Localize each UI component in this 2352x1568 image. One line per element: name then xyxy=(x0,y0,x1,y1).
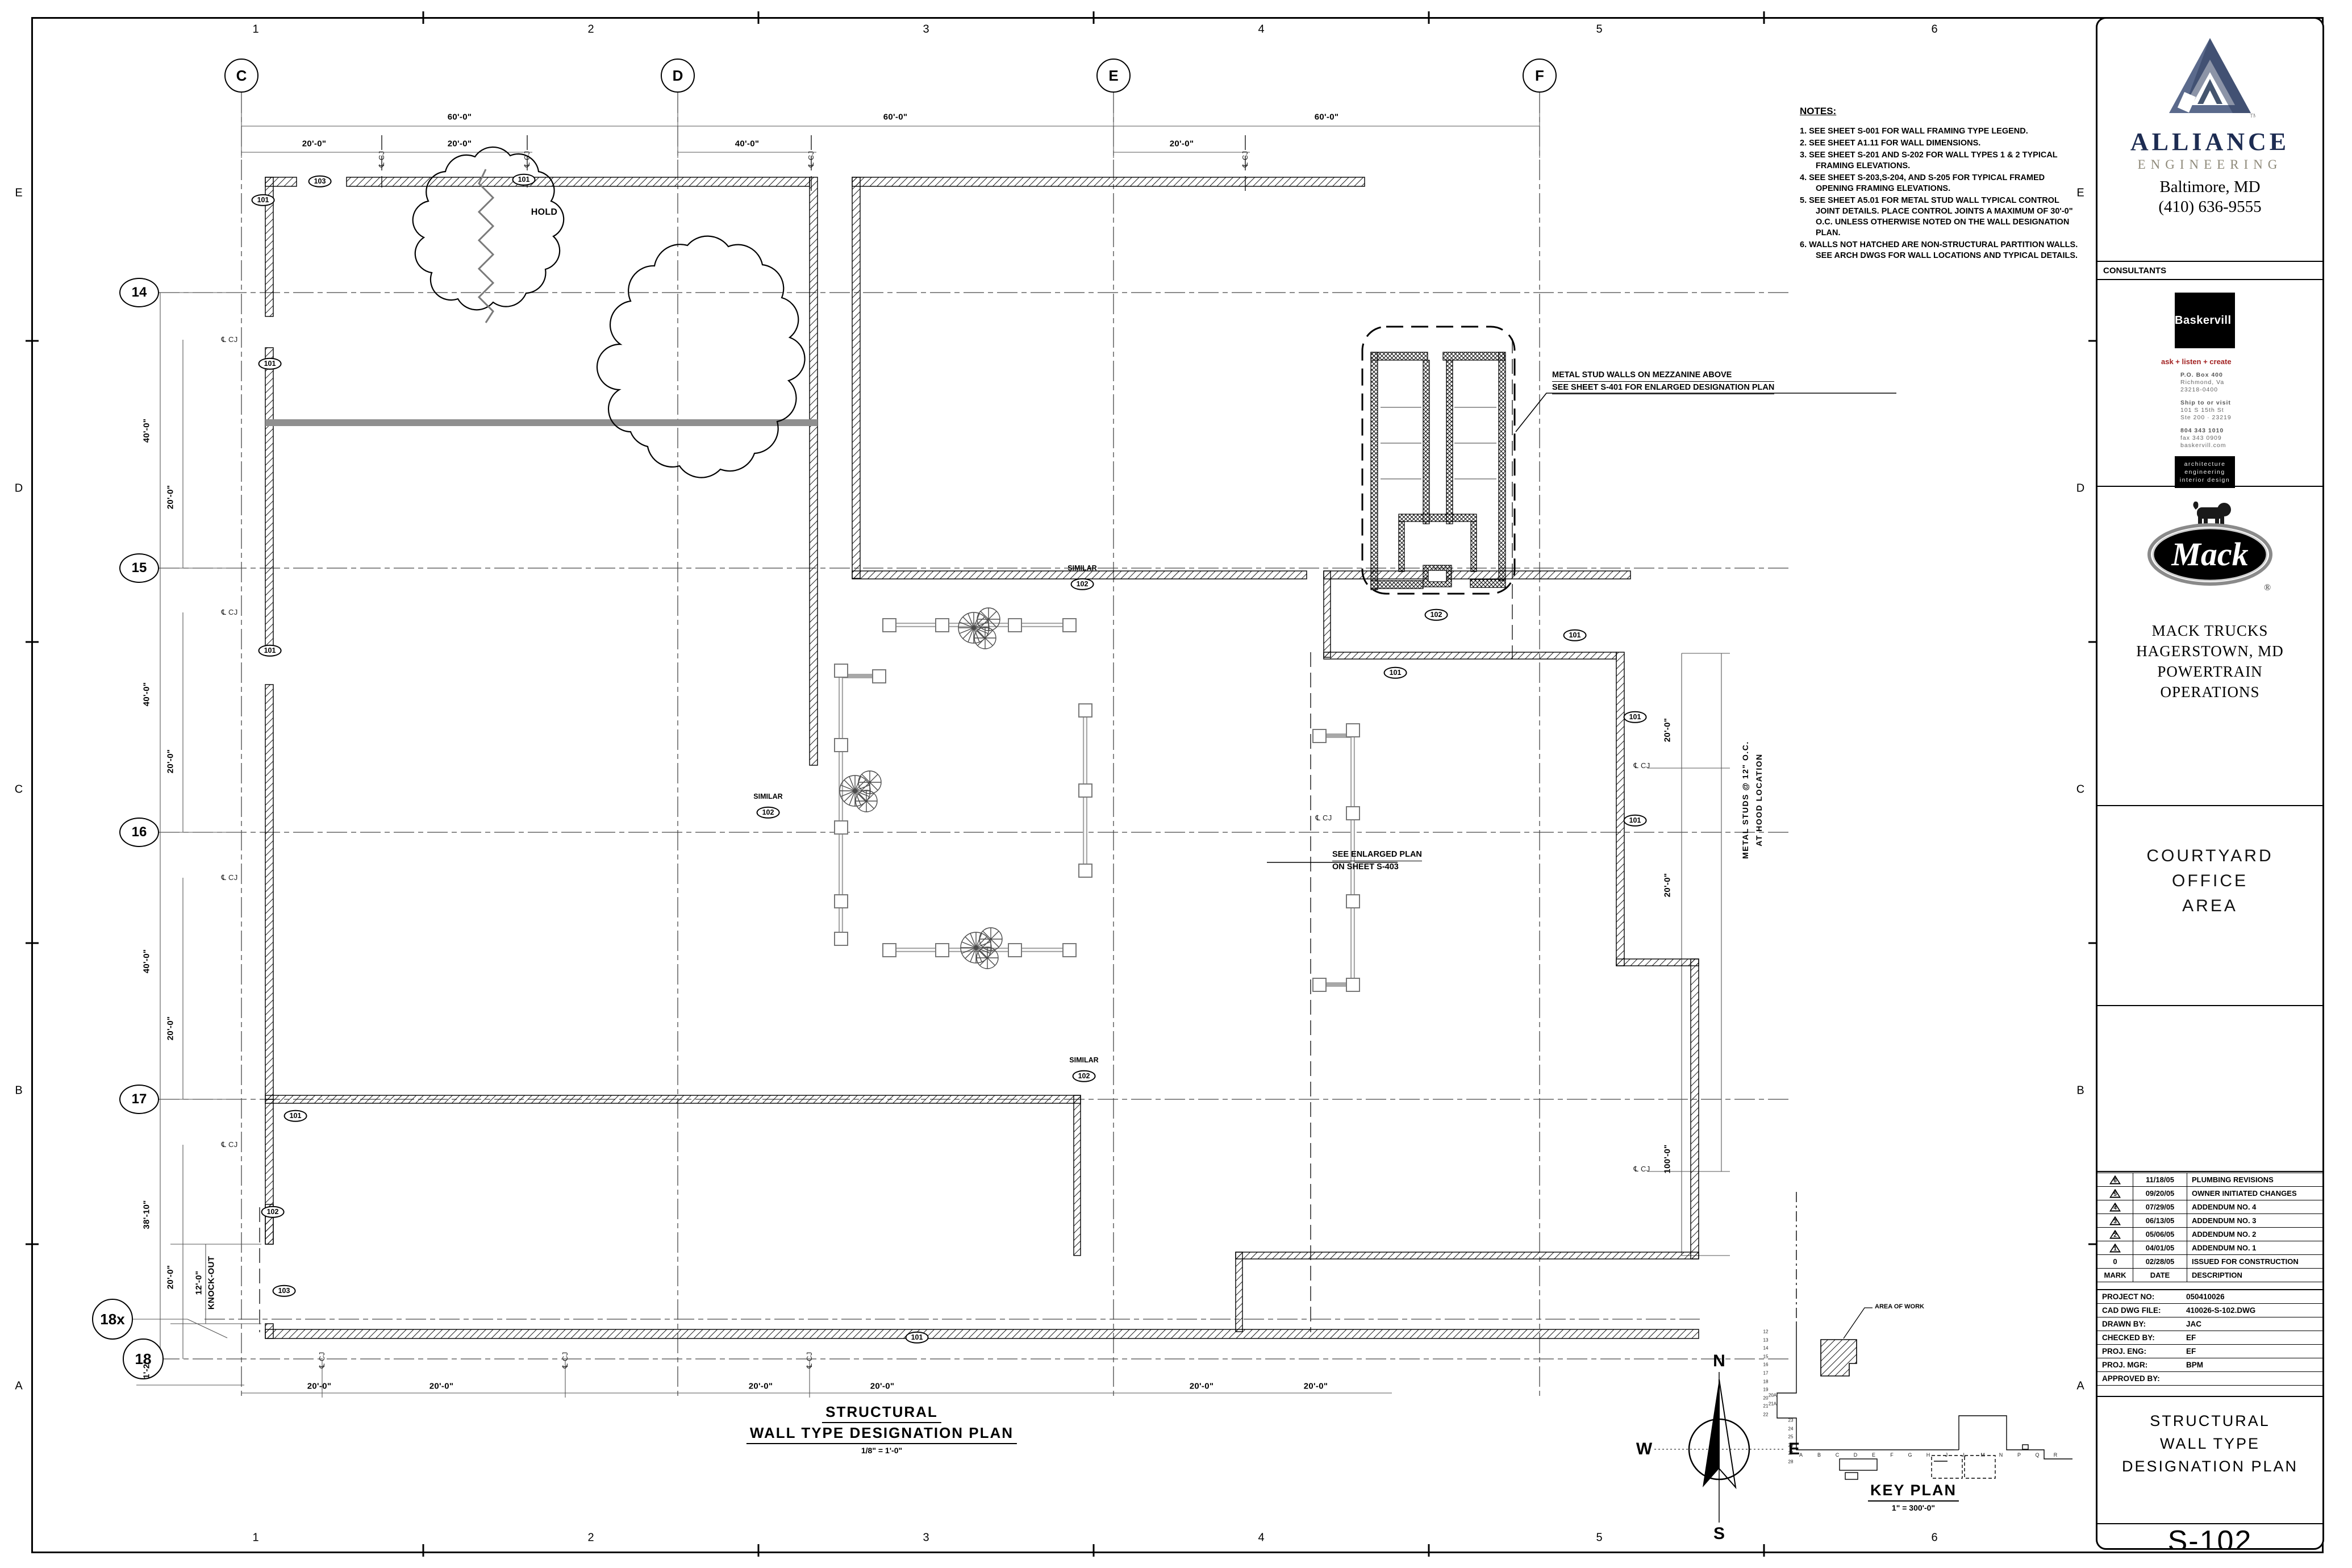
compass-north-label: N xyxy=(1713,1352,1725,1371)
dimension-label: 20'-0" xyxy=(307,1382,332,1391)
border-letter-right: C xyxy=(2076,783,2084,796)
control-joint-label: ℄ CJ xyxy=(1315,814,1332,823)
wall-type-tag: 102 xyxy=(1425,609,1448,621)
note-item: 5. SEE SHEET A5.01 FOR METAL STUD WALL T… xyxy=(1800,195,2084,239)
grid-bubble-row: 15 xyxy=(119,553,159,583)
grid-bubble-column: E xyxy=(1096,59,1131,93)
dimension-label: 40'-0" xyxy=(142,949,152,974)
revision-table: 611/18/05PLUMBING REVISIONS509/20/05OWNE… xyxy=(2097,1172,2322,1290)
border-number-top: 5 xyxy=(1596,23,1602,36)
grid-bubble-row: 14 xyxy=(119,278,159,307)
key-plan-column-letter: H xyxy=(1926,1452,1930,1458)
consultants-label: CONSULTANTS xyxy=(2097,266,2166,276)
grid-bubble-row: 18x xyxy=(92,1299,133,1340)
project-info-table: PROJECT NO:050410026CAD DWG FILE:410026-… xyxy=(2097,1290,2322,1397)
grid-bubble-column: F xyxy=(1523,59,1557,93)
dimension-label: 12'-0" xyxy=(194,1271,204,1295)
revision-row: 407/29/05ADDENDUM NO. 4 xyxy=(2097,1200,2322,1213)
border-letter-left: A xyxy=(15,1380,22,1393)
wall-type-tag: 102 xyxy=(261,1206,285,1218)
compass-east-label: E xyxy=(1788,1440,1800,1459)
svg-text:®: ® xyxy=(2264,583,2271,593)
control-joint-label: ℄ CJ xyxy=(807,151,816,167)
dimension-label: 20'-0" xyxy=(302,139,327,149)
border-number-top: 3 xyxy=(923,23,929,36)
key-plan-column-letter: L xyxy=(1963,1452,1966,1458)
mezzanine-note: METAL STUD WALLS ON MEZZANINE ABOVE SEE … xyxy=(1552,369,1774,394)
similar-label: SIMILAR xyxy=(1067,564,1096,572)
key-plan-title: KEY PLAN 1" = 300'-0" xyxy=(1868,1482,1959,1512)
mack-logo-icon: Mack ® xyxy=(2145,495,2275,603)
dimension-label: 20'-0" xyxy=(166,749,176,774)
key-plan-column-letter: E xyxy=(1872,1452,1875,1458)
enlarged-plan-note-line1: SEE ENLARGED PLAN xyxy=(1332,849,1422,861)
dimension-label: 100'-0" xyxy=(1663,1144,1673,1173)
sheet-title-line: DESIGNATION PLAN xyxy=(2097,1455,2322,1478)
baskervill-services: architectureengineeringinterior design xyxy=(2175,456,2235,488)
dimension-label: 20'-0" xyxy=(1190,1382,1214,1391)
wall-type-tag: 101 xyxy=(258,645,282,657)
firm-subtitle: ENGINEERING xyxy=(2097,157,2322,172)
dimension-label: 38'-10" xyxy=(142,1200,152,1229)
key-plan-row-number: 28 xyxy=(1788,1459,1794,1465)
key-plan-column-letter: M xyxy=(1980,1452,1985,1458)
contact-line: fax 343 0909 xyxy=(2180,435,2322,442)
dimension-label: 1'-2" xyxy=(142,1360,152,1379)
dimension-label: 20'-0" xyxy=(870,1382,895,1391)
dimension-label: 40'-0" xyxy=(142,419,152,443)
client-panel: Mack ® MACK TRUCKSHAGERSTOWN, MDPOWERTRA… xyxy=(2097,487,2322,806)
mezzanine-note-line1: METAL STUD WALLS ON MEZZANINE ABOVE xyxy=(1552,369,1774,382)
wall-type-tag: 103 xyxy=(273,1285,296,1297)
firm-city: Baltimore, MD xyxy=(2097,178,2322,197)
dimension-label: 20'-0" xyxy=(429,1382,454,1391)
similar-label: SIMILAR xyxy=(753,793,782,800)
revision-row: 509/20/05OWNER INITIATED CHANGES xyxy=(2097,1186,2322,1200)
revision-delta-icon: 6 xyxy=(2109,1175,2121,1185)
client-name-line: HAGERSTOWN, MD xyxy=(2097,641,2322,661)
border-letter-left: E xyxy=(15,187,22,200)
control-joint-label: ℄ CJ xyxy=(1241,151,1250,167)
similar-label: SIMILAR xyxy=(1069,1056,1098,1064)
revision-row: 002/28/05ISSUED FOR CONSTRUCTION xyxy=(2097,1254,2322,1268)
consultant-card: Baskervill ask + listen + create P.O. Bo… xyxy=(2097,280,2322,487)
hold-label: HOLD xyxy=(531,207,558,218)
key-plan-row-number: 23 xyxy=(1788,1418,1794,1423)
project-info-row: CHECKED BY:EF xyxy=(2097,1331,2322,1345)
revision-row: 205/06/05ADDENDUM NO. 2 xyxy=(2097,1227,2322,1241)
client-name-line: POWERTRAIN xyxy=(2097,661,2322,682)
border-letter-right: D xyxy=(2076,482,2084,495)
dimension-label: 40'-0" xyxy=(142,682,152,707)
control-joint-label: ℄ CJ xyxy=(221,608,237,617)
service-line: architecture xyxy=(2175,460,2235,468)
border-letter-right: A xyxy=(2076,1380,2084,1393)
dimension-label: 20'-0" xyxy=(1663,718,1673,743)
revision-delta-icon: 2 xyxy=(2109,1230,2121,1239)
svg-text:Mack: Mack xyxy=(2171,536,2248,573)
key-plan-row-number: 16 xyxy=(1763,1362,1769,1367)
control-joint-label: ℄ CJ xyxy=(1633,761,1650,770)
address-line: P.O. Box 400 xyxy=(2180,372,2322,379)
key-plan-column-letter: Q xyxy=(2035,1452,2039,1458)
area-of-work-label: AREA OF WORK xyxy=(1875,1303,1924,1310)
revision-delta-icon: 1 xyxy=(2109,1244,2121,1253)
consultants-bar: CONSULTANTS xyxy=(2097,262,2322,280)
compass-west-label: W xyxy=(1636,1440,1652,1459)
revision-delta-icon: 4 xyxy=(2109,1203,2121,1212)
note-item: 2. SEE SHEET A1.11 FOR WALL DIMENSIONS. xyxy=(1800,138,2084,149)
key-plan-row-number: 25 xyxy=(1788,1434,1794,1440)
dimension-label: 20'-0" xyxy=(1663,873,1673,898)
border-number-bottom: 6 xyxy=(1931,1532,1937,1545)
control-joint-label: ℄ CJ xyxy=(221,335,237,344)
control-joint-label: ℄ CJ xyxy=(1633,1165,1650,1174)
address-line: 23218-0400 xyxy=(2180,386,2322,394)
area-panel: COURTYARDOFFICEAREA xyxy=(2097,806,2322,1006)
firm-panel: TM ALLIANCE ENGINEERING Baltimore, MD (4… xyxy=(2097,19,2322,262)
key-plan-column-letter: B xyxy=(1817,1452,1821,1458)
sheet-title-panel: STRUCTURALWALL TYPEDESIGNATION PLAN xyxy=(2097,1397,2322,1524)
border-number-top: 2 xyxy=(587,23,594,36)
key-plan-row-number: 21 xyxy=(1763,1404,1769,1409)
key-plan-row-number: 19 xyxy=(1763,1387,1769,1392)
dimension-label: KNOCK-OUT xyxy=(207,1256,216,1310)
area-name-line: OFFICE xyxy=(2097,869,2322,894)
wall-type-tag: 101 xyxy=(252,194,275,206)
control-joint-label: ℄ CJ xyxy=(221,873,237,882)
baskervill-logo: Baskervill xyxy=(2175,293,2235,348)
border-number-top: 4 xyxy=(1258,23,1264,36)
key-plan-column-letter: C xyxy=(1836,1452,1840,1458)
revision-row: 611/18/05PLUMBING REVISIONS xyxy=(2097,1173,2322,1186)
dimension-label: 60'-0" xyxy=(1315,112,1339,122)
wall-type-tag: 101 xyxy=(512,174,536,186)
enlarged-plan-note-line2: ON SHEET S-403 xyxy=(1332,861,1422,873)
sheet-number-panel: S-102 xyxy=(2097,1524,2322,1550)
grid-bubble-row: 16 xyxy=(119,818,159,847)
wall-type-tag: 101 xyxy=(258,358,282,370)
sheet-title-line: STRUCTURAL xyxy=(2097,1409,2322,1432)
dimension-label: 20'-0" xyxy=(448,139,472,149)
firm-name: ALLIANCE xyxy=(2097,127,2322,156)
wall-type-tag: 101 xyxy=(1624,711,1647,723)
key-plan-scale: 1" = 300'-0" xyxy=(1868,1503,1959,1512)
key-plan-row-number: 21A xyxy=(1769,1402,1776,1407)
area-name-line: COURTYARD xyxy=(2097,844,2322,869)
border-letter-left: D xyxy=(15,482,23,495)
address-line: 101 S 15th St xyxy=(2180,407,2322,414)
key-plan-row-number: 13 xyxy=(1763,1337,1769,1342)
baskervill-visit-address: Ship to or visit101 S 15th StSte 200 · 2… xyxy=(2180,399,2322,422)
service-line: interior design xyxy=(2175,476,2235,484)
address-line: Richmond, Va xyxy=(2180,379,2322,386)
border-number-bottom: 5 xyxy=(1596,1532,1602,1545)
control-joint-label: ℄ CJ xyxy=(318,1352,327,1368)
revision-delta-icon: 5 xyxy=(2109,1189,2121,1198)
project-info-row: DRAWN BY:JAC xyxy=(2097,1317,2322,1331)
sheet-title-line: WALL TYPE xyxy=(2097,1432,2322,1455)
baskervill-address: P.O. Box 400Richmond, Va23218-0400 xyxy=(2180,372,2322,394)
revision-delta-icon: 3 xyxy=(2109,1216,2121,1225)
client-name-lines: MACK TRUCKSHAGERSTOWN, MDPOWERTRAINOPERA… xyxy=(2097,620,2322,702)
key-plan-column-letter: R xyxy=(2054,1452,2058,1458)
hood-note-line1: METAL STUDS @ 12" O.C. xyxy=(1741,741,1750,859)
plan-title: STRUCTURAL WALL TYPE DESIGNATION PLAN 1/… xyxy=(747,1403,1017,1455)
key-plan-row-number: 18 xyxy=(1763,1379,1769,1384)
wall-type-tag: 101 xyxy=(906,1332,929,1344)
wall-type-tag: 101 xyxy=(1384,667,1407,679)
notes-title: NOTES: xyxy=(1800,106,2084,117)
wall-type-tag: 101 xyxy=(284,1110,307,1122)
empty-panel xyxy=(2097,1006,2322,1172)
mezzanine-note-line2: SEE SHEET S-401 FOR ENLARGED DESIGNATION… xyxy=(1552,382,1774,394)
firm-phone: (410) 636-9555 xyxy=(2097,198,2322,216)
key-plan-column-letter: J xyxy=(1945,1452,1948,1458)
wall-type-tag: 102 xyxy=(1071,578,1094,590)
wall-type-tag: 103 xyxy=(308,176,332,187)
baskervill-tagline: ask + listen + create xyxy=(2161,357,2322,366)
hood-note-line2: AT HOOD LOCATION xyxy=(1754,753,1763,846)
plan-scale: 1/8" = 1'-0" xyxy=(747,1446,1017,1455)
contact-line: 804 343 1010 xyxy=(2180,427,2322,435)
drawing-sheet: 123456123456EDCBAEDCBA NOTES: 1. SEE SHE… xyxy=(0,0,2352,1568)
key-plan-column-letter: N xyxy=(1999,1452,2003,1458)
revision-row: 306/13/05ADDENDUM NO. 3 xyxy=(2097,1213,2322,1227)
border-letter-left: B xyxy=(15,1085,22,1098)
revision-header-row: MARKDATEDESCRIPTION xyxy=(2097,1268,2322,1282)
dimension-label: 40'-0" xyxy=(735,139,760,149)
baskervill-contact: 804 343 1010fax 343 0909baskervill.com xyxy=(2180,427,2322,449)
key-plan-row-number: 15 xyxy=(1763,1354,1769,1359)
note-item: 1. SEE SHEET S-001 FOR WALL FRAMING TYPE… xyxy=(1800,126,2084,137)
key-plan-row-number: 20A xyxy=(1769,1393,1776,1398)
border-number-top: 1 xyxy=(252,23,258,36)
border-number-bottom: 4 xyxy=(1258,1532,1264,1545)
note-item: 6. WALLS NOT HATCHED ARE NON-STRUCTURAL … xyxy=(1800,240,2084,261)
dimension-label: 20'-0" xyxy=(166,1265,176,1290)
alliance-logo-icon: TM xyxy=(2165,35,2255,120)
dimension-label: 20'-0" xyxy=(166,485,176,510)
border-letter-left: C xyxy=(15,783,23,796)
compass-south-label: S xyxy=(1713,1524,1725,1544)
address-line: Ship to or visit xyxy=(2180,399,2322,407)
grid-bubble-column: C xyxy=(224,59,258,93)
control-joint-label: ℄ CJ xyxy=(523,151,532,167)
project-info-row: APPROVED BY: xyxy=(2097,1372,2322,1386)
sheet-number: S-102 xyxy=(2168,1524,2253,1550)
revision-row: 104/01/05ADDENDUM NO. 1 xyxy=(2097,1241,2322,1254)
control-joint-label: ℄ CJ xyxy=(221,1140,237,1149)
dimension-label: 20'-0" xyxy=(1304,1382,1328,1391)
address-line: Ste 200 · 23219 xyxy=(2180,414,2322,422)
plan-title-line1: STRUCTURAL xyxy=(822,1403,941,1423)
key-plan-row-number: 22 xyxy=(1763,1412,1769,1417)
dimension-label: 60'-0" xyxy=(448,112,472,122)
border-number-bottom: 3 xyxy=(923,1532,929,1545)
notes-list: 1. SEE SHEET S-001 FOR WALL FRAMING TYPE… xyxy=(1800,126,2084,261)
key-plan-row-number: 17 xyxy=(1763,1371,1769,1376)
client-name-line: MACK TRUCKS xyxy=(2097,620,2322,641)
enlarged-plan-note: SEE ENLARGED PLAN ON SHEET S-403 xyxy=(1332,849,1422,873)
key-plan-row-number: 20 xyxy=(1763,1395,1769,1400)
key-plan-column-letter: F xyxy=(1890,1452,1894,1458)
key-plan-column-letter: G xyxy=(1908,1452,1912,1458)
title-block: TM ALLIANCE ENGINEERING Baltimore, MD (4… xyxy=(2096,17,2324,1550)
service-line: engineering xyxy=(2175,468,2235,476)
project-info-row: PROJECT NO:050410026 xyxy=(2097,1290,2322,1304)
notes-block: NOTES: 1. SEE SHEET S-001 FOR WALL FRAMI… xyxy=(1800,106,2084,262)
wall-type-tag: 102 xyxy=(757,807,780,819)
key-plan-title-text: KEY PLAN xyxy=(1868,1482,1959,1502)
key-plan-row-number: 12 xyxy=(1763,1329,1769,1335)
note-item: 4. SEE SHEET S-203,S-204, AND S-205 FOR … xyxy=(1800,173,2084,194)
note-item: 3. SEE SHEET S-201 AND S-202 FOR WALL TY… xyxy=(1800,150,2084,172)
dimension-label: 20'-0" xyxy=(749,1382,773,1391)
dimension-label: 20'-0" xyxy=(1170,139,1194,149)
control-joint-label: ℄ CJ xyxy=(561,1352,570,1368)
key-plan-row-number: 14 xyxy=(1763,1346,1769,1351)
control-joint-label: ℄ CJ xyxy=(377,151,386,167)
wall-type-tag: 101 xyxy=(1563,629,1587,641)
contact-line: baskervill.com xyxy=(2180,442,2322,449)
project-info-row: CAD DWG FILE:410026-S-102.DWG xyxy=(2097,1304,2322,1317)
project-info-row: PROJ. MGR:BPM xyxy=(2097,1358,2322,1372)
project-info-row: PROJ. ENG:EF xyxy=(2097,1345,2322,1358)
grid-bubble-row: 17 xyxy=(119,1085,159,1114)
key-plan-row-number: 24 xyxy=(1788,1426,1794,1431)
client-name-line: OPERATIONS xyxy=(2097,682,2322,702)
grid-bubble-column: D xyxy=(661,59,695,93)
key-plan-column-letter: P xyxy=(2017,1452,2021,1458)
border-number-bottom: 1 xyxy=(252,1532,258,1545)
dimension-label: 60'-0" xyxy=(883,112,908,122)
area-name-line: AREA xyxy=(2097,894,2322,919)
border-number-top: 6 xyxy=(1931,23,1937,36)
wall-type-tag: 102 xyxy=(1073,1070,1096,1082)
border-number-bottom: 2 xyxy=(587,1532,594,1545)
dimension-label: 20'-0" xyxy=(166,1016,176,1041)
border-letter-right: B xyxy=(2076,1085,2084,1098)
wall-type-tag: 101 xyxy=(1624,815,1647,827)
control-joint-label: ℄ CJ xyxy=(805,1352,814,1368)
svg-text:TM: TM xyxy=(2250,113,2255,119)
key-plan-column-letter: D xyxy=(1854,1452,1858,1458)
plan-title-line2: WALL TYPE DESIGNATION PLAN xyxy=(747,1424,1017,1444)
